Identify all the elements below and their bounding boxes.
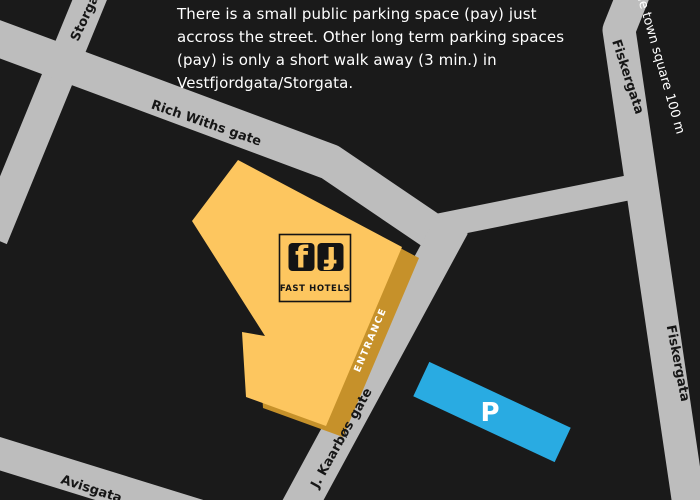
hotel-parking-map: ENTRANCE f f FAST HOTELS P Storgata Rich… <box>0 0 700 500</box>
note-line-1: There is a small public parking space (p… <box>177 3 607 26</box>
note-line-3: (pay) is only a short walk away (3 min.)… <box>177 49 607 72</box>
note-line-2: accross the street. Other long term park… <box>177 26 607 49</box>
logo-letter-f-inverted-icon: f <box>323 239 337 274</box>
note-line-4: Vestfjordgata/Storgata. <box>177 72 607 95</box>
logo-letter-f-icon: f <box>295 241 309 276</box>
parking-p-icon: P <box>480 398 499 428</box>
hotel-logo-caption: FAST HOTELS <box>280 284 350 294</box>
parking-info-note: There is a small public parking space (p… <box>177 3 607 95</box>
